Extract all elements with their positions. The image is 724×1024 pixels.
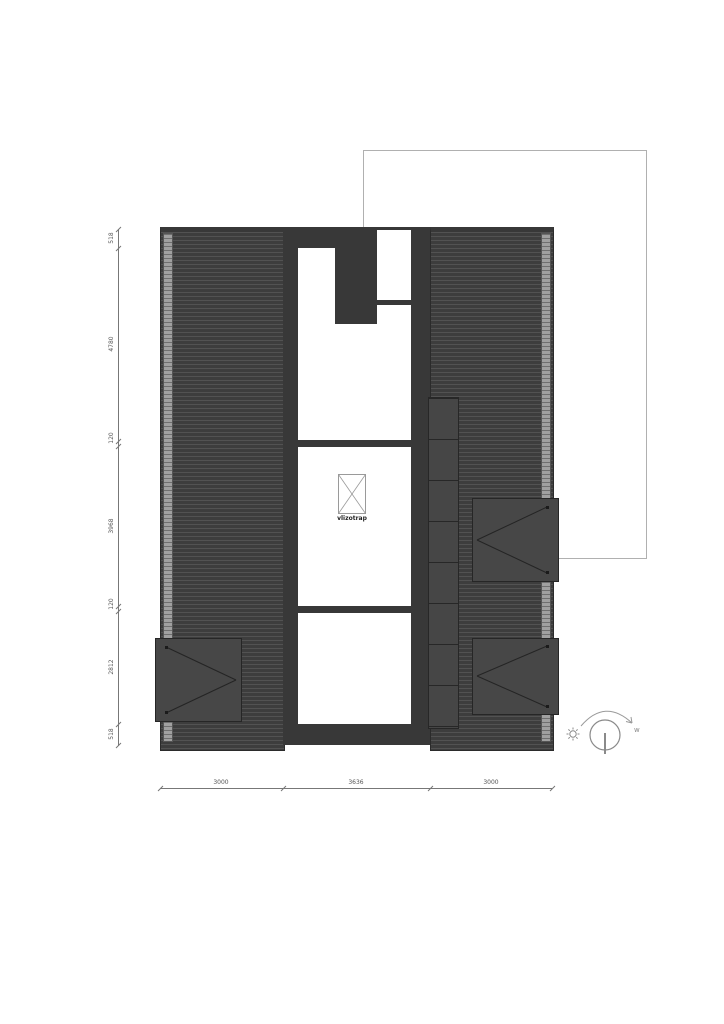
dim-label-2812: 2812 (108, 647, 116, 687)
dim-label-3968: 3968 (108, 506, 116, 546)
skylight-right-lower (472, 638, 559, 715)
skylight-right-upper (472, 498, 559, 582)
attic-ladder-symbol (338, 474, 366, 514)
dim-label-3636: 3636 (336, 779, 376, 787)
dim-chain-bottom-line (160, 788, 552, 789)
corridor-room-1 (298, 324, 411, 440)
attic-ladder-label: vlizotrap (328, 515, 376, 522)
top-alcove (298, 248, 335, 324)
roof-window-column (428, 397, 459, 729)
dim-tick (116, 743, 122, 749)
dim-label-4780: 4780 (108, 324, 116, 364)
sun-dial-icon (590, 720, 620, 754)
sun-icon (567, 728, 580, 741)
void-strip-lower (377, 305, 411, 324)
dim-label-3000-left: 3000 (201, 779, 241, 787)
void-strip-upper (377, 230, 411, 300)
dim-label-120-upper: 120 (108, 418, 116, 458)
dim-tick (550, 786, 556, 792)
dim-chain-left-line (118, 229, 119, 746)
corridor-room-3 (298, 613, 411, 724)
dim-label-518-bottom: 518 (108, 714, 116, 754)
drawing-canvas: vlizotrap 518 4780 (0, 0, 724, 1024)
sun-path-arrow-icon (581, 711, 632, 726)
dim-label-120-lower: 120 (108, 584, 116, 624)
dim-label-518-top: 518 (108, 218, 116, 258)
corridor-room-2 (298, 447, 411, 606)
dim-label-3000-right: 3000 (471, 779, 511, 787)
west-label: w (634, 726, 640, 734)
skylight-left-lower (155, 638, 242, 722)
